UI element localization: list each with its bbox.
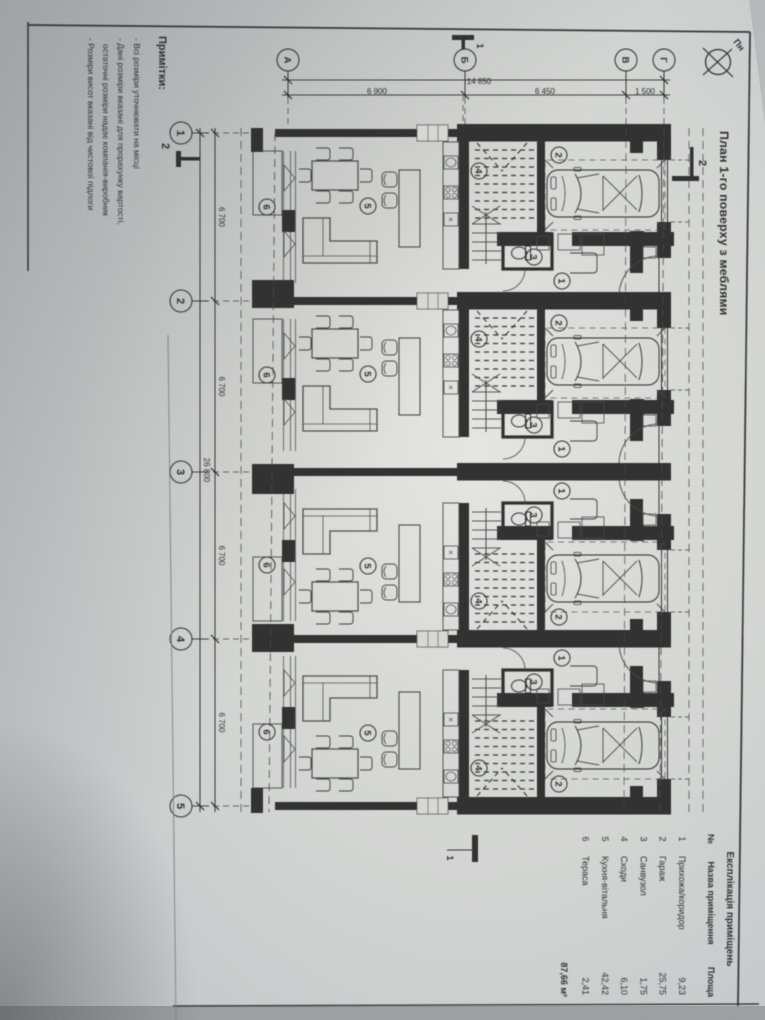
svg-text:6 900: 6 900	[367, 87, 388, 96]
svg-text:Санвузол: Санвузол	[638, 856, 648, 896]
svg-text:1: 1	[677, 836, 687, 841]
svg-text:6 700: 6 700	[217, 712, 226, 733]
svg-text:1: 1	[445, 855, 455, 860]
svg-text:3: 3	[528, 512, 539, 517]
svg-text:Експлікація приміщень: Експлікація приміщень	[724, 851, 735, 966]
svg-text:87,66 м²: 87,66 м²	[559, 962, 569, 997]
svg-text:2: 2	[159, 143, 171, 149]
svg-text:1: 1	[174, 130, 186, 136]
svg-text:2: 2	[696, 160, 708, 166]
svg-text:- Дані розміри вказані для про: - Дані розміри вказані для прорахунку ва…	[116, 38, 126, 225]
svg-text:4: 4	[473, 168, 484, 174]
svg-text:5: 5	[362, 371, 373, 377]
svg-text:6: 6	[261, 204, 272, 209]
svg-text:В: В	[620, 57, 631, 64]
svg-text:4: 4	[174, 636, 186, 643]
svg-text:6 700: 6 700	[217, 545, 226, 566]
svg-text:Г: Г	[658, 57, 669, 63]
svg-text:3: 3	[528, 679, 539, 684]
svg-text:5: 5	[362, 730, 373, 736]
svg-text:План 1-го поверху з меблями: План 1-го поверху з меблями	[717, 131, 731, 316]
svg-text:5: 5	[362, 563, 373, 569]
svg-text:2: 2	[553, 152, 564, 157]
svg-text:4: 4	[473, 336, 484, 342]
svg-text:2,41: 2,41	[581, 977, 591, 995]
svg-text:2: 2	[553, 781, 564, 786]
svg-text:А: А	[282, 57, 293, 64]
svg-text:6 450: 6 450	[535, 87, 556, 96]
svg-text:42,42: 42,42	[600, 972, 610, 995]
svg-text:×: ×	[446, 217, 455, 222]
svg-text:4: 4	[619, 836, 629, 841]
svg-text:6 700: 6 700	[217, 376, 226, 397]
svg-text:2: 2	[553, 320, 564, 325]
svg-text:2: 2	[553, 614, 564, 619]
svg-text:1: 1	[556, 488, 567, 494]
svg-text:6: 6	[581, 836, 591, 841]
svg-text:Кухня-вітальня: Кухня-вітальня	[600, 856, 610, 919]
svg-text:6: 6	[261, 372, 272, 377]
svg-text:×: ×	[446, 717, 455, 722]
svg-text:остаточні розміри надає компан: остаточні розміри надає компанія-виробни…	[101, 44, 111, 216]
svg-text:×: ×	[446, 550, 455, 555]
svg-text:1,75: 1,75	[638, 977, 648, 995]
svg-text:Площа: Площа	[706, 967, 716, 998]
svg-text:- Розміри висот вказані від чи: - Розміри висот вказані від чистової під…	[86, 38, 96, 210]
svg-text:5: 5	[174, 803, 186, 809]
svg-text:3: 3	[174, 469, 186, 475]
svg-text:Сходи: Сходи	[619, 856, 629, 882]
svg-text:1: 1	[556, 278, 567, 284]
svg-text:Б: Б	[459, 57, 470, 64]
svg-text:6 700: 6 700	[217, 207, 226, 228]
svg-text:3: 3	[638, 836, 648, 841]
svg-text:2: 2	[658, 836, 668, 841]
svg-text:Назва приміщення: Назва приміщення	[706, 861, 716, 944]
svg-text:14 850: 14 850	[467, 77, 492, 86]
svg-text:25,75: 25,75	[658, 972, 668, 995]
svg-text:Тераса: Тераса	[581, 856, 591, 886]
svg-text:Прихожа/коридор: Прихожа/коридор	[677, 856, 687, 930]
svg-text:1: 1	[556, 446, 567, 452]
svg-text:3: 3	[528, 422, 539, 427]
svg-text:1 500: 1 500	[635, 87, 656, 96]
svg-text:5: 5	[362, 203, 373, 209]
svg-text:5: 5	[600, 836, 610, 841]
svg-text:Гараж: Гараж	[658, 856, 668, 881]
svg-text:26 800: 26 800	[202, 458, 211, 483]
svg-text:3: 3	[528, 254, 539, 259]
svg-text:2: 2	[174, 298, 186, 304]
svg-text:№: №	[706, 834, 716, 844]
svg-text:Примітки:: Примітки:	[156, 36, 168, 90]
svg-text:×: ×	[446, 385, 455, 390]
svg-text:4: 4	[473, 765, 484, 771]
svg-text:4: 4	[473, 598, 484, 604]
svg-text:1: 1	[475, 43, 485, 48]
svg-text:1: 1	[556, 655, 567, 661]
svg-text:9,23: 9,23	[677, 977, 687, 995]
svg-text:6: 6	[261, 562, 272, 567]
svg-text:6,10: 6,10	[619, 977, 629, 995]
svg-text:- Всі розміри уточнювати на мі: - Всі розміри уточнювати на місці	[132, 38, 142, 169]
